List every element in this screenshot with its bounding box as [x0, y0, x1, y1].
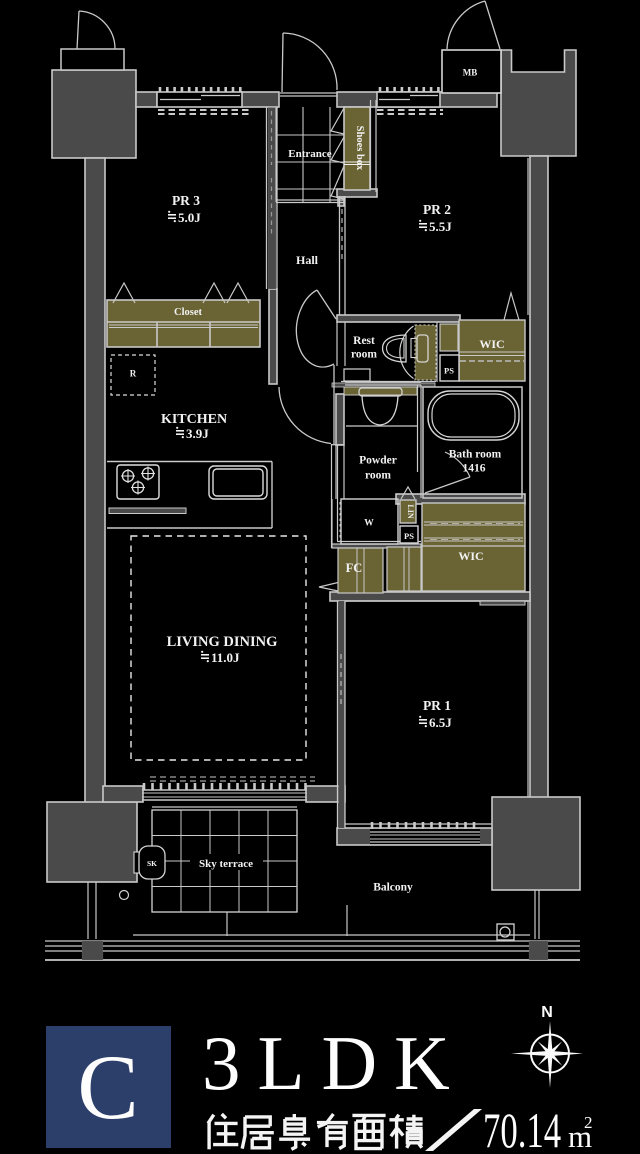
svg-text:PR 1: PR 1: [423, 698, 451, 713]
svg-text:WIC: WIC: [458, 549, 483, 563]
svg-text:Shoes box: Shoes box: [354, 126, 365, 171]
svg-text:Closet: Closet: [174, 307, 202, 318]
svg-text:Hall: Hall: [296, 253, 319, 267]
svg-text:PS: PS: [444, 366, 454, 376]
svg-text:SK: SK: [147, 859, 157, 868]
svg-text:3LDK: 3LDK: [202, 1020, 467, 1106]
svg-text:PR 2: PR 2: [423, 202, 451, 217]
svg-text:N: N: [541, 1004, 553, 1021]
svg-text:6.5J: 6.5J: [429, 715, 452, 730]
svg-text:LIVING DINING: LIVING DINING: [167, 634, 278, 650]
svg-text:70.14: 70.14: [483, 1104, 561, 1154]
svg-text:WIC: WIC: [479, 337, 504, 351]
svg-text:Sky terrace: Sky terrace: [199, 858, 253, 870]
svg-text:Entrance: Entrance: [288, 148, 332, 160]
svg-text:1416: 1416: [463, 463, 486, 475]
svg-text:Bath room: Bath room: [449, 449, 502, 461]
svg-text:Powder: Powder: [359, 455, 397, 467]
svg-text:Balcony: Balcony: [373, 882, 413, 894]
svg-text:MB: MB: [463, 68, 478, 78]
svg-text:LIN: LIN: [406, 504, 415, 518]
svg-text:PS: PS: [404, 531, 414, 541]
svg-text:5.5J: 5.5J: [429, 219, 452, 234]
svg-text:PR 3: PR 3: [172, 193, 200, 208]
svg-text:FC: FC: [346, 561, 363, 575]
svg-text:room: room: [351, 349, 377, 361]
svg-text:Rest: Rest: [353, 335, 375, 347]
svg-text:R: R: [130, 369, 137, 379]
svg-text:room: room: [365, 470, 391, 482]
svg-text:C: C: [77, 1036, 138, 1138]
svg-text:3.9J: 3.9J: [186, 426, 209, 441]
svg-text:11.0J: 11.0J: [211, 650, 240, 665]
svg-text:5.0J: 5.0J: [178, 210, 201, 225]
svg-text:KITCHEN: KITCHEN: [161, 412, 227, 427]
svg-text:2: 2: [584, 1113, 593, 1132]
svg-text:W: W: [364, 519, 374, 529]
